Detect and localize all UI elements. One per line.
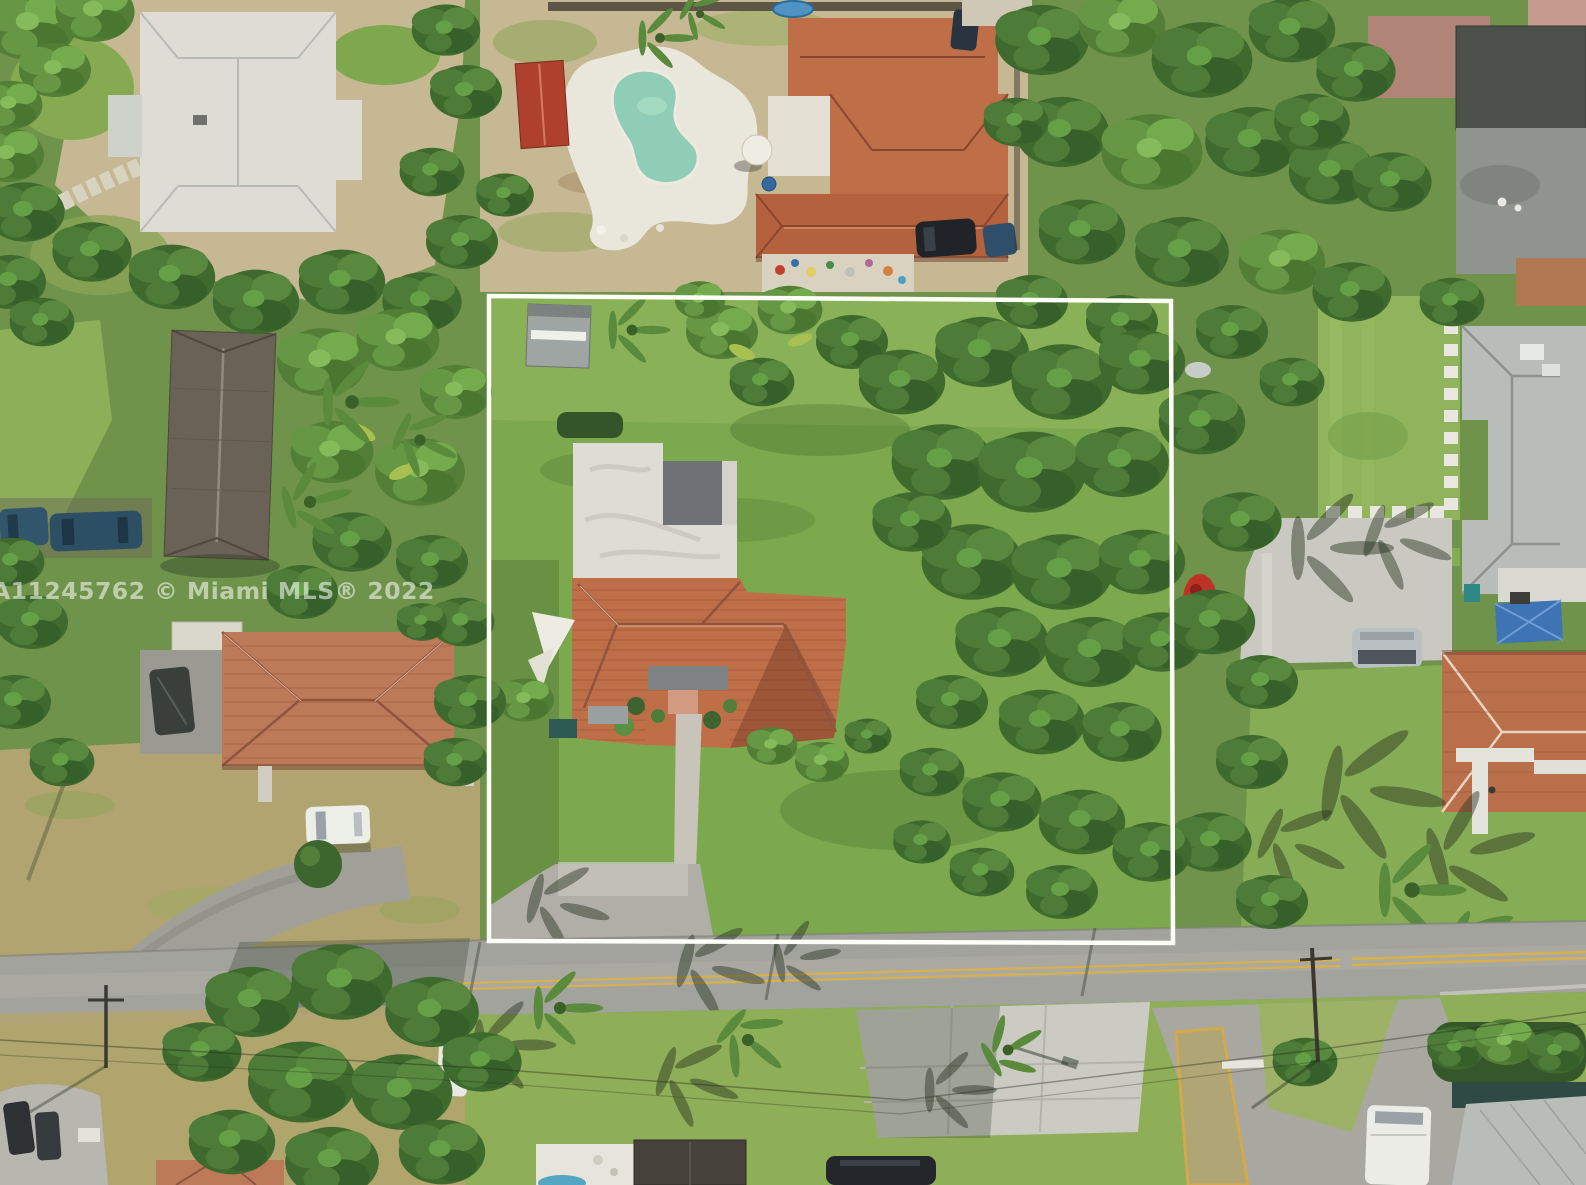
pool-highlight [637,97,667,115]
mls-watermark: A11245762 © Miami MLS® 2022 [0,577,435,605]
teal-bin [1464,584,1480,602]
entry-landing [668,690,698,714]
blue-car [982,222,1018,258]
kiddie-pool [773,1,813,17]
estate-house-roof [140,12,362,232]
white-van-right [1365,1105,1432,1185]
round-bush [294,840,342,888]
blue-canopy [1495,600,1563,643]
dark-roof-house [164,330,276,559]
corner-gray-roof [1452,1096,1586,1185]
charcoal-flat-roof [1456,26,1586,130]
storage-shed [526,304,591,368]
front-walk [1456,748,1534,762]
teal-car-2 [49,510,142,551]
black-suv [915,218,977,258]
rear-neighbor-property [480,0,1032,292]
top-right-neighbor [1368,0,1586,306]
aerial-photo: A11245762 © Miami MLS® 2022 [0,0,1586,1185]
jet-ski-2 [34,1111,61,1161]
patio-umbrella [742,135,772,165]
rooftop-ac-unit [1520,344,1544,360]
left-middle-neighbor [0,320,280,578]
teal-awning [549,719,577,738]
salmon-roof-house [222,632,454,770]
silver-car [1352,628,1422,668]
dirt-strip [1516,258,1586,306]
blue-barrel [762,177,776,191]
estate-house-wing [108,95,142,157]
rear-house-courtyard [768,96,830,176]
gray-shingle-house [1462,326,1586,594]
white-car-glimpse [1185,362,1211,378]
entry-canopy [648,666,728,690]
dark-gray-roof-section [663,461,722,525]
estate-roof-vent [193,115,207,125]
